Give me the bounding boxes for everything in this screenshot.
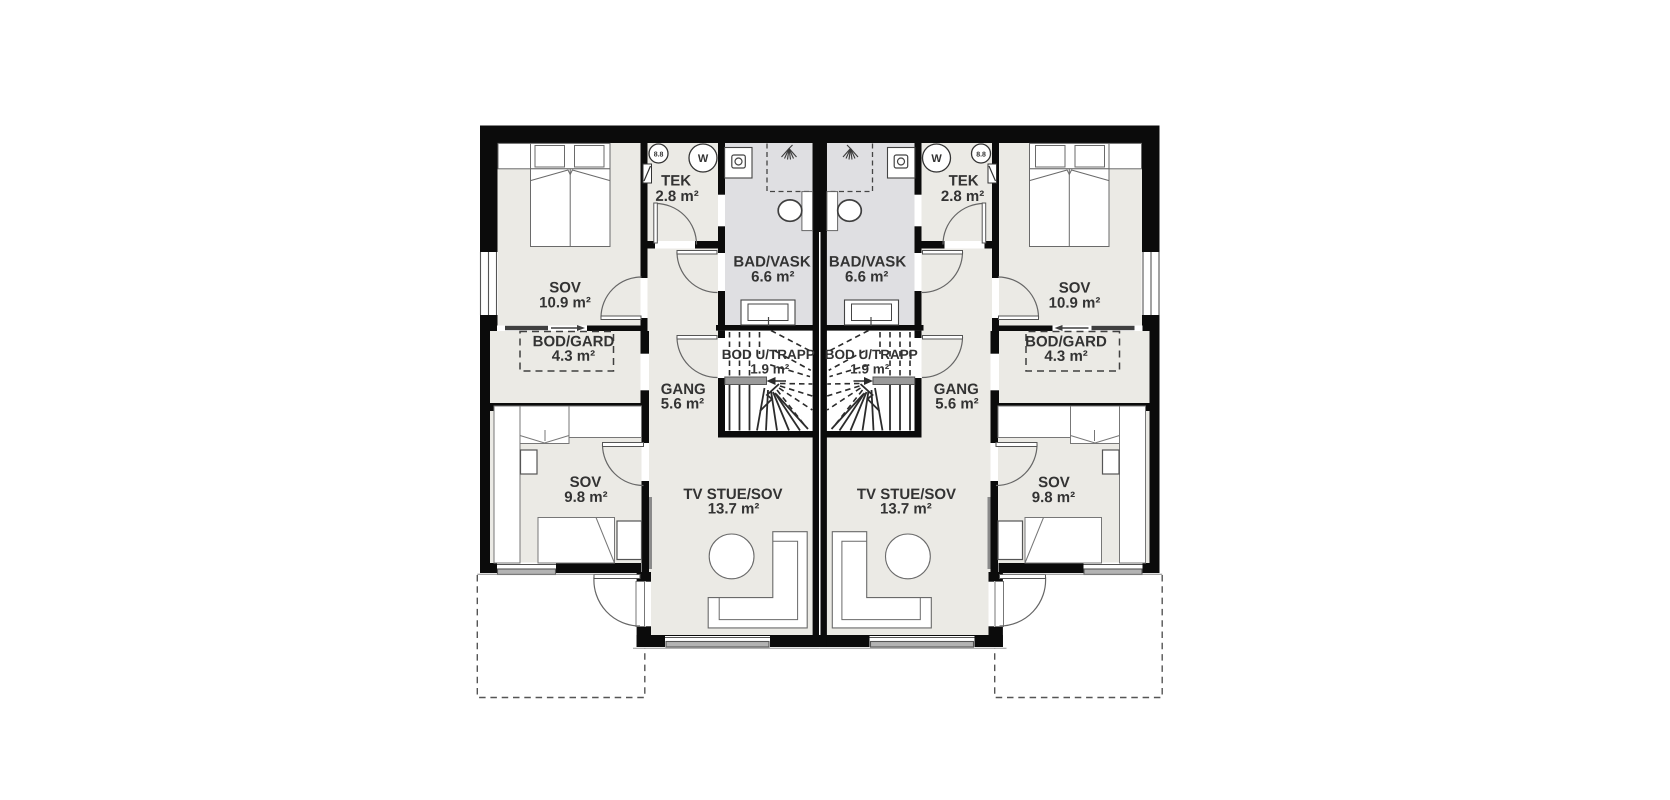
- svg-text:10.9 m²: 10.9 m²: [539, 294, 591, 311]
- svg-text:6.6 m²: 6.6 m²: [751, 268, 794, 285]
- svg-text:BOD U/TRAPP: BOD U/TRAPP: [825, 347, 918, 362]
- svg-text:10.9 m²: 10.9 m²: [1049, 295, 1101, 312]
- svg-text:W: W: [698, 153, 709, 165]
- svg-text:TEK: TEK: [661, 172, 691, 189]
- svg-text:8.8: 8.8: [654, 151, 664, 158]
- svg-text:BOD U/TRAPP: BOD U/TRAPP: [722, 347, 815, 362]
- svg-text:4.3 m²: 4.3 m²: [1044, 348, 1087, 365]
- svg-text:6.6 m²: 6.6 m²: [845, 269, 888, 286]
- svg-text:13.7 m²: 13.7 m²: [880, 501, 932, 518]
- svg-text:9.8 m²: 9.8 m²: [1032, 489, 1075, 506]
- svg-text:W: W: [931, 153, 942, 165]
- svg-text:5.6 m²: 5.6 m²: [661, 395, 704, 412]
- svg-text:2.8 m²: 2.8 m²: [655, 188, 698, 205]
- svg-text:2.8 m²: 2.8 m²: [941, 188, 984, 205]
- svg-text:9.8 m²: 9.8 m²: [564, 489, 607, 506]
- svg-text:5.6 m²: 5.6 m²: [935, 396, 978, 413]
- svg-text:13.7 m²: 13.7 m²: [708, 500, 760, 517]
- svg-text:1.9 m²: 1.9 m²: [850, 362, 890, 377]
- svg-text:1.9 m²: 1.9 m²: [750, 361, 790, 376]
- svg-text:TEK: TEK: [949, 173, 979, 190]
- svg-text:8.8: 8.8: [976, 152, 986, 159]
- svg-text:4.3 m²: 4.3 m²: [552, 348, 595, 365]
